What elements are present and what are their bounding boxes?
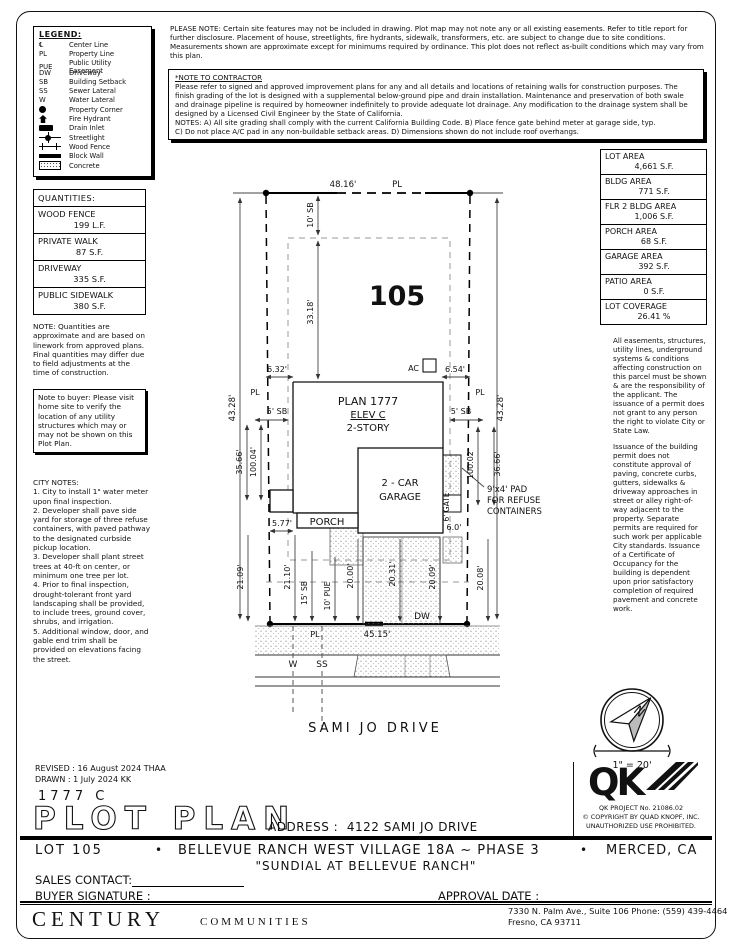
svg-text:QK: QK [588,762,646,802]
refuse-pad [443,455,461,495]
qk-logo-block: QK QK PROJECT No. 21086.02 © COPYRIGHT B… [573,762,708,836]
drawn-line: DRAWN : 1 July 2024 KK [35,775,131,784]
revised-line: REVISED : 16 August 2024 THAA [35,764,166,773]
dim-2009-label: 20.09' [428,564,437,589]
drain-inlet-icon [39,125,53,131]
qk-project-number: QK PROJECT No. 21086.02 [574,804,708,812]
please-note-text: PLEASE NOTE: Certain site features may n… [170,24,704,60]
area-table: LOT AREA4,661 S.F. BLDG AREA771 S.F. FLR… [600,149,707,325]
story-label: 2-STORY [347,423,391,434]
dim-sb-right-label: 5' SB [451,407,471,416]
street-name: SAMI JO DRIVE [308,721,442,736]
contractor-note-box: *NOTE TO CONTRACTOR Please refer to sign… [168,69,704,140]
setback-symbol: SB [39,78,69,86]
office-address: 7330 N. Palm Ave., Suite 106 Phone: (559… [508,906,727,916]
qk-logo-stripes [646,762,698,790]
office-address: Fresno, CA 93711 [508,917,581,927]
site-address: 4122 SAMI JO DRIVE [347,820,478,834]
legend-item: ℄Center Line [39,40,146,49]
footer-bar-line [20,904,712,905]
area-row: LOT AREA4,661 S.F. [601,150,706,174]
area-row: PORCH AREA68 S.F. [601,224,706,249]
city-notes: CITY NOTES: 1. City to install 1" water … [33,478,151,664]
block-wall-icon [39,154,61,158]
quantity-row: DRIVEWAY335 S.F. [34,260,145,287]
refuse-pad-label: 9'x4' PAD [487,485,528,495]
house-outline [270,359,461,533]
legend-box: LEGEND: ℄Center Line PLProperty Line PUE… [33,26,152,177]
svg-text:CONTAINERS: CONTAINERS [487,507,542,517]
sewer-symbol: SS [39,87,69,95]
centerline-symbol: ℄ [39,41,69,49]
water-symbol: W [39,96,69,104]
concrete-icon [39,161,61,170]
footer-bullet: • [580,843,587,857]
legend-item: SSSewer Lateral [39,86,146,95]
sewer-lateral-label: SS [316,660,328,670]
city-notes-body: 1. City to install 1" water meter upon f… [33,487,151,664]
dim-2008-label: 20.08' [476,565,485,590]
contractor-note-body: Please refer to signed and approved impr… [175,82,697,136]
side-notes: All easements, structures, utility lines… [613,336,707,613]
company-name: CENTURY [32,907,165,932]
dim-3566-label: 35.66' [235,449,244,474]
dim-654-label: 6.54' [445,365,465,374]
garage-label: 2 - CAR [381,478,418,489]
fire-hydrant-icon [39,115,47,123]
footer-bullet: • [155,843,162,857]
footer-community: BELLEVUE RANCH WEST VILLAGE 18A ~ PHASE … [178,843,540,858]
sales-contact-blank [132,875,244,887]
dim-577-label: 5.77' [272,519,292,528]
plot-drawing: 48.16' PL 43.28' 43.28' 10' SB 33.18' 10… [225,165,605,765]
qk-logo: QK [588,762,698,802]
property-line-symbol: PL [39,50,69,58]
sales-contact-row: SALES CONTACT: [35,873,244,887]
buyer-note-text: Note to buyer: Please visit home site to… [38,393,141,449]
lot-number: 105 [369,281,425,312]
ac-label: AC [408,364,419,373]
dim-top-label: 48.16' [330,180,357,190]
qk-copyright: © COPYRIGHT BY QUAD KNOPF, INC. [574,813,708,821]
property-corner-icon [39,106,46,113]
legend-item: Wood Fence [39,142,146,151]
quantities-note: NOTE: Quantities are approximate and are… [33,322,146,378]
legend-item: DWDriveway [39,68,146,77]
streetlight-icon [39,133,61,142]
dim-left-label: 43.28' [228,395,238,422]
elev-label: ELEV C [350,410,385,421]
qk-copyright: UNAUTHORIZED USE PROHIBITED. [574,822,708,830]
ac-pad-outline [423,359,436,372]
side-note-paragraph: All easements, structures, utility lines… [613,336,707,435]
footer-lot: LOT 105 [35,843,103,858]
side-note-paragraph: Issuance of the building permit does not… [613,442,707,613]
quantities-title: QUANTITIES: [34,190,145,206]
dim-2000-label: 20.00' [346,563,355,588]
area-row: BLDG AREA771 S.F. [601,174,706,199]
dim-sb-bottom-label: 15' SB [300,581,309,605]
legend-item: PUEPublic Utility Easement [39,59,146,68]
company-subname: COMMUNITIES [200,916,311,928]
pl-label-right: PL [475,388,485,397]
contractor-note-title: *NOTE TO CONTRACTOR [175,73,697,82]
wood-fence-icon [39,143,61,150]
area-row: FLR 2 BLDG AREA1,006 S.F. [601,199,706,224]
legend-item: SBBuilding Setback [39,77,146,86]
gate-dim-label: 6.0' [447,523,462,532]
city-notes-title: CITY NOTES: [33,478,151,487]
address-line: ADDRESS : 4122 SAMI JO DRIVE [268,820,478,834]
garage-label: GARAGE [379,492,421,503]
quantity-row: PUBLIC SIDEWALK380 S.F. [34,287,145,314]
area-row: LOT COVERAGE26.41 % [601,299,706,324]
legend-title: LEGEND: [39,30,146,39]
legend-item: Fire Hydrant [39,114,146,123]
legend-item: Concrete [39,161,146,170]
dim-sb-left-label: 5' SB [267,407,287,416]
dim-2110-label: 21.10' [283,564,292,589]
legend-item: PLProperty Line [39,49,146,58]
dim-2109-label: 21.09' [236,564,245,589]
quantity-row: PRIVATE WALK87 S.F. [34,233,145,260]
legend-item: Drain Inlet [39,124,146,133]
gate-label: 6' GATE [442,492,451,521]
quantity-row: WOOD FENCE199 L.F. [34,206,145,233]
legend-item: Block Wall [39,152,146,161]
dim-10002-label: 100.02' [466,449,475,479]
footer-city: MERCED, CA [606,843,697,858]
area-row: GARAGE AREA392 S.F. [601,249,706,274]
dim-2031-label: 20.31' [388,561,397,586]
dim-632-label: 6.32' [267,365,287,374]
legend-item: Property Corner [39,105,146,114]
water-lateral-label: W [289,660,298,670]
plan-label: PLAN 1777 [338,395,398,408]
dim-frontage-label: 45.15' [364,630,391,640]
porch-label: PORCH [310,517,345,528]
dim-3666-label: 36.66' [493,451,502,476]
quantities-table: QUANTITIES: WOOD FENCE199 L.F. PRIVATE W… [33,189,146,315]
dim-sb-top-label: 10' SB [306,202,315,228]
dim-10004-label: 100.04' [249,447,258,477]
pl-label-top: PL [392,180,402,190]
legend-item: WWater Lateral [39,96,146,105]
garage-outline [358,448,443,533]
dim-pue-label: 10' PUE [323,581,332,610]
footer-subtitle: "SUNDIAL AT BELLEVUE RANCH" [20,859,712,873]
dim-right-label: 43.28' [496,395,506,422]
plot-plan-sheet: PLEASE NOTE: Certain site features may n… [0,0,732,947]
title-rule [20,836,712,840]
buyer-note-box: Note to buyer: Please visit home site to… [33,389,146,453]
dw-label: DW [414,612,430,622]
driveway-symbol: DW [39,69,69,77]
footer-bar-line [20,901,712,903]
legend-item: Streetlight [39,133,146,142]
sheet-title: PLOT PLAN [33,801,297,837]
area-row: PATIO AREA0 S.F. [601,274,706,299]
svg-text:FOR REFUSE: FOR REFUSE [487,496,540,506]
pl-label-left: PL [250,388,260,397]
dim-depth-label: 33.18' [306,299,315,324]
pl-label-bottom: PL [310,630,320,639]
